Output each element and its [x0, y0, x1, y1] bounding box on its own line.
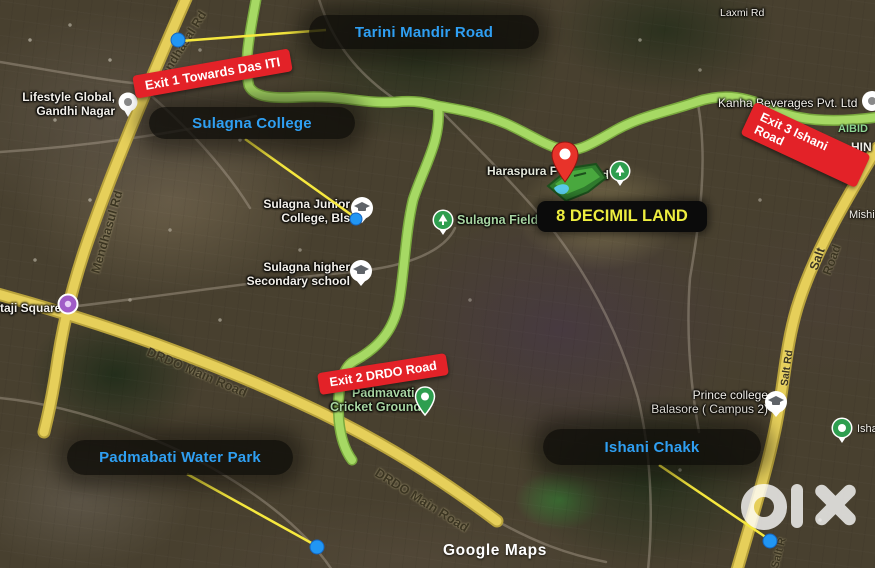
edge-poi-icon[interactable] [861, 90, 875, 112]
edge-label-mishi: Mishi [849, 209, 875, 221]
poi-junior-college: Sulagna Junior College, Bls [255, 197, 350, 225]
google-maps-watermark: Google Maps [443, 542, 547, 560]
annotation-tarini-mandir-road: Tarini Mandir Road [309, 15, 539, 49]
poi-lifestyle-line1: Lifestyle Global, [20, 90, 115, 104]
poi-prince-college: Prince college Balasore ( Campus 2) [630, 388, 768, 416]
poi-lifestyle-line2: Gandhi Nagar [20, 104, 115, 118]
annotation-ishani-chakk: Ishani Chakk [543, 429, 761, 465]
poi-sulagna-field: Sulagna Field [457, 213, 538, 227]
graduation-cap-icon[interactable] [764, 390, 788, 418]
park-tree-icon[interactable] [831, 417, 853, 444]
property-label: 8 DECIMIL LAND [537, 201, 707, 232]
poi-prince-line2: Balasore ( Campus 2) [630, 402, 768, 416]
road-label-laxmi: Laxmi Rd [720, 6, 764, 20]
square-poi-icon[interactable] [57, 293, 79, 315]
edge-label-aibid: AIBID [838, 123, 868, 135]
park-tree-icon[interactable] [432, 209, 454, 236]
poi-secondary-line1: Sulagna higher [232, 260, 350, 274]
annotation-padmabati-water-park: Padmabati Water Park [67, 440, 293, 475]
park-tree-icon[interactable] [609, 160, 631, 187]
location-pin-icon[interactable] [550, 140, 580, 184]
map-canvas: Mendhasal Rd Mendhasul Rd DRDO Main Road… [0, 0, 875, 568]
poi-cricket-line2: Cricket Ground [330, 400, 421, 414]
poi-secondary-line2: Secondary school [232, 274, 350, 288]
poi-lifestyle-global: Lifestyle Global, Gandhi Nagar [20, 90, 115, 118]
poi-kanha-beverages: Kanha Beverages Pvt. Ltd [718, 96, 857, 110]
poi-secondary-school: Sulagna higher Secondary school [232, 260, 350, 288]
olx-o [741, 484, 787, 530]
poi-prince-line1: Prince college [630, 388, 768, 402]
poi-junior-line1: Sulagna Junior [255, 197, 350, 211]
cricket-ground-pin-icon[interactable] [414, 386, 436, 416]
graduation-cap-icon[interactable] [350, 196, 374, 224]
graduation-cap-icon[interactable] [349, 259, 373, 287]
olx-logo [741, 478, 859, 534]
olx-l [791, 484, 803, 528]
annotation-sulagna-college: Sulagna College [149, 107, 355, 139]
poi-netaji-square: taji Square [0, 301, 61, 315]
edge-label-isha: Isha [857, 423, 875, 435]
poi-junior-line2: College, Bls [255, 211, 350, 225]
